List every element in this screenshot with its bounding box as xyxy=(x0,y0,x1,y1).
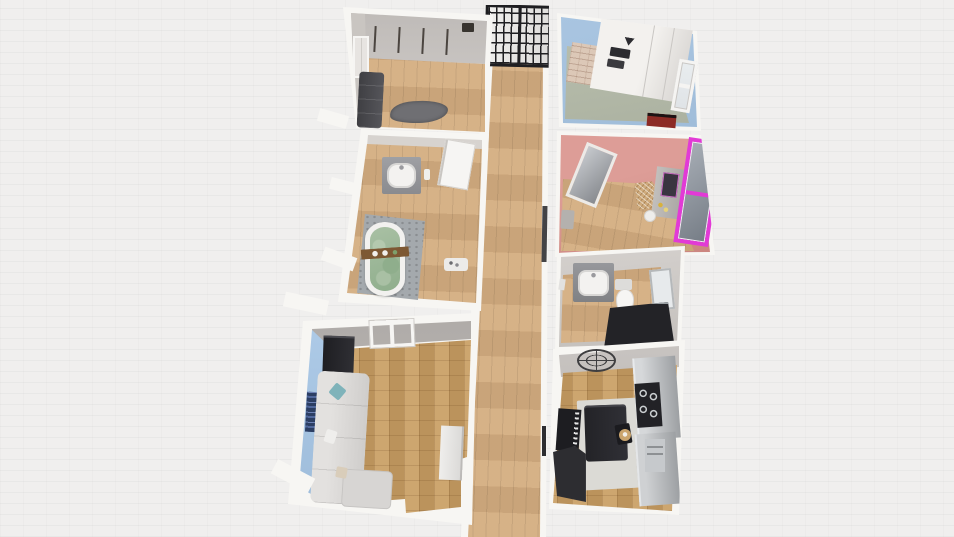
chair-seat[interactable] xyxy=(619,429,631,441)
vanity-mirror xyxy=(661,172,680,198)
speaker[interactable] xyxy=(462,23,474,32)
room-bathroom-small[interactable] xyxy=(548,242,696,356)
dark-sofa[interactable] xyxy=(357,71,385,128)
bathtub[interactable] xyxy=(365,222,405,296)
dishwasher[interactable] xyxy=(645,439,665,472)
entry-grid-door[interactable] xyxy=(484,4,555,68)
cooktop-mark xyxy=(607,58,625,69)
black-cabinet[interactable] xyxy=(322,335,354,375)
sectional-sofa[interactable] xyxy=(314,372,394,512)
dark-shower[interactable] xyxy=(604,302,674,348)
keyboard-piano[interactable] xyxy=(556,408,582,452)
bath-rug[interactable] xyxy=(444,258,468,271)
gray-stool[interactable] xyxy=(560,210,574,230)
tv-stand[interactable] xyxy=(439,426,464,481)
cooktop[interactable] xyxy=(634,382,662,428)
room-kitchen-nook[interactable] xyxy=(550,2,706,140)
window[interactable] xyxy=(369,319,414,348)
tub-water xyxy=(370,227,400,291)
vanity-sink-2[interactable] xyxy=(573,263,614,302)
wall-dark-fixture[interactable] xyxy=(542,426,546,456)
tan-pillow[interactable] xyxy=(335,466,348,479)
wall-clock[interactable] xyxy=(577,349,616,372)
cooktop-mark xyxy=(609,47,630,59)
bath-caddy-tray[interactable] xyxy=(361,246,410,259)
vent-notch xyxy=(623,37,634,47)
outer-wall-stub xyxy=(329,177,357,195)
room-living[interactable] xyxy=(284,310,480,526)
red-mat[interactable] xyxy=(646,113,676,128)
room-wardrobe[interactable] xyxy=(328,2,494,136)
room-bathroom-main[interactable] xyxy=(338,124,490,314)
round-stool[interactable] xyxy=(644,210,656,222)
sink-basin-2 xyxy=(578,270,609,296)
sofa-chaise-section xyxy=(341,469,393,510)
wall-radiator-panel[interactable] xyxy=(542,206,548,262)
vanity-sink[interactable] xyxy=(382,157,421,194)
outer-wall-stub xyxy=(317,108,349,129)
dark-sofa-kitchen[interactable] xyxy=(553,446,586,502)
sink-basin xyxy=(387,163,416,188)
outer-wall-stub xyxy=(283,292,329,316)
room-kitchen-dining[interactable] xyxy=(542,334,696,526)
soap-bottle[interactable] xyxy=(424,169,430,180)
room-bedroom[interactable] xyxy=(548,124,718,262)
floorplan-scene xyxy=(0,0,954,537)
